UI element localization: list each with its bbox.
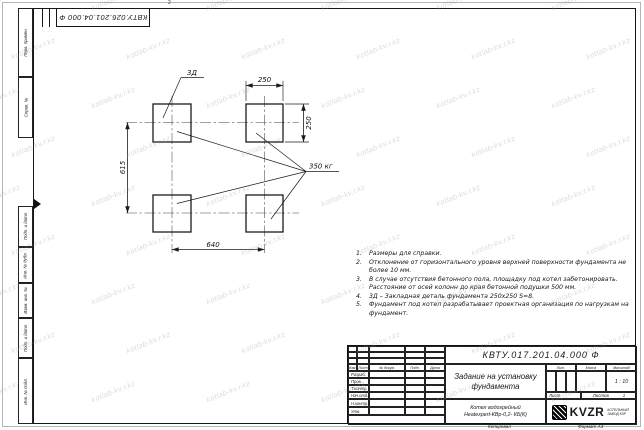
dim-label-span-horizontal: 640: [206, 241, 220, 249]
dimension-250-height: 250: [285, 104, 313, 142]
callout-load: 350 кг: [177, 132, 339, 220]
fold-mark: [34, 199, 41, 209]
dim-label-pad-height: 250: [305, 116, 313, 130]
dimension-615: 615: [119, 123, 128, 214]
load-label: 350 кг: [309, 163, 333, 171]
drawing-sheet: 2 Перв. примен. Справ. № Подп. и дата Ин…: [0, 0, 644, 430]
dim-label-pad-width: 250: [258, 76, 272, 84]
foundation-plan-drawing: 250 250 615 640 3Д 350 кг: [0, 0, 644, 430]
dim-label-span-vertical: 615: [119, 160, 127, 174]
centerlines: [126, 96, 299, 253]
dimension-640: 640: [172, 241, 265, 250]
callout-embedded-detail: 3Д: [163, 69, 204, 118]
detail-label: 3Д: [187, 69, 197, 77]
